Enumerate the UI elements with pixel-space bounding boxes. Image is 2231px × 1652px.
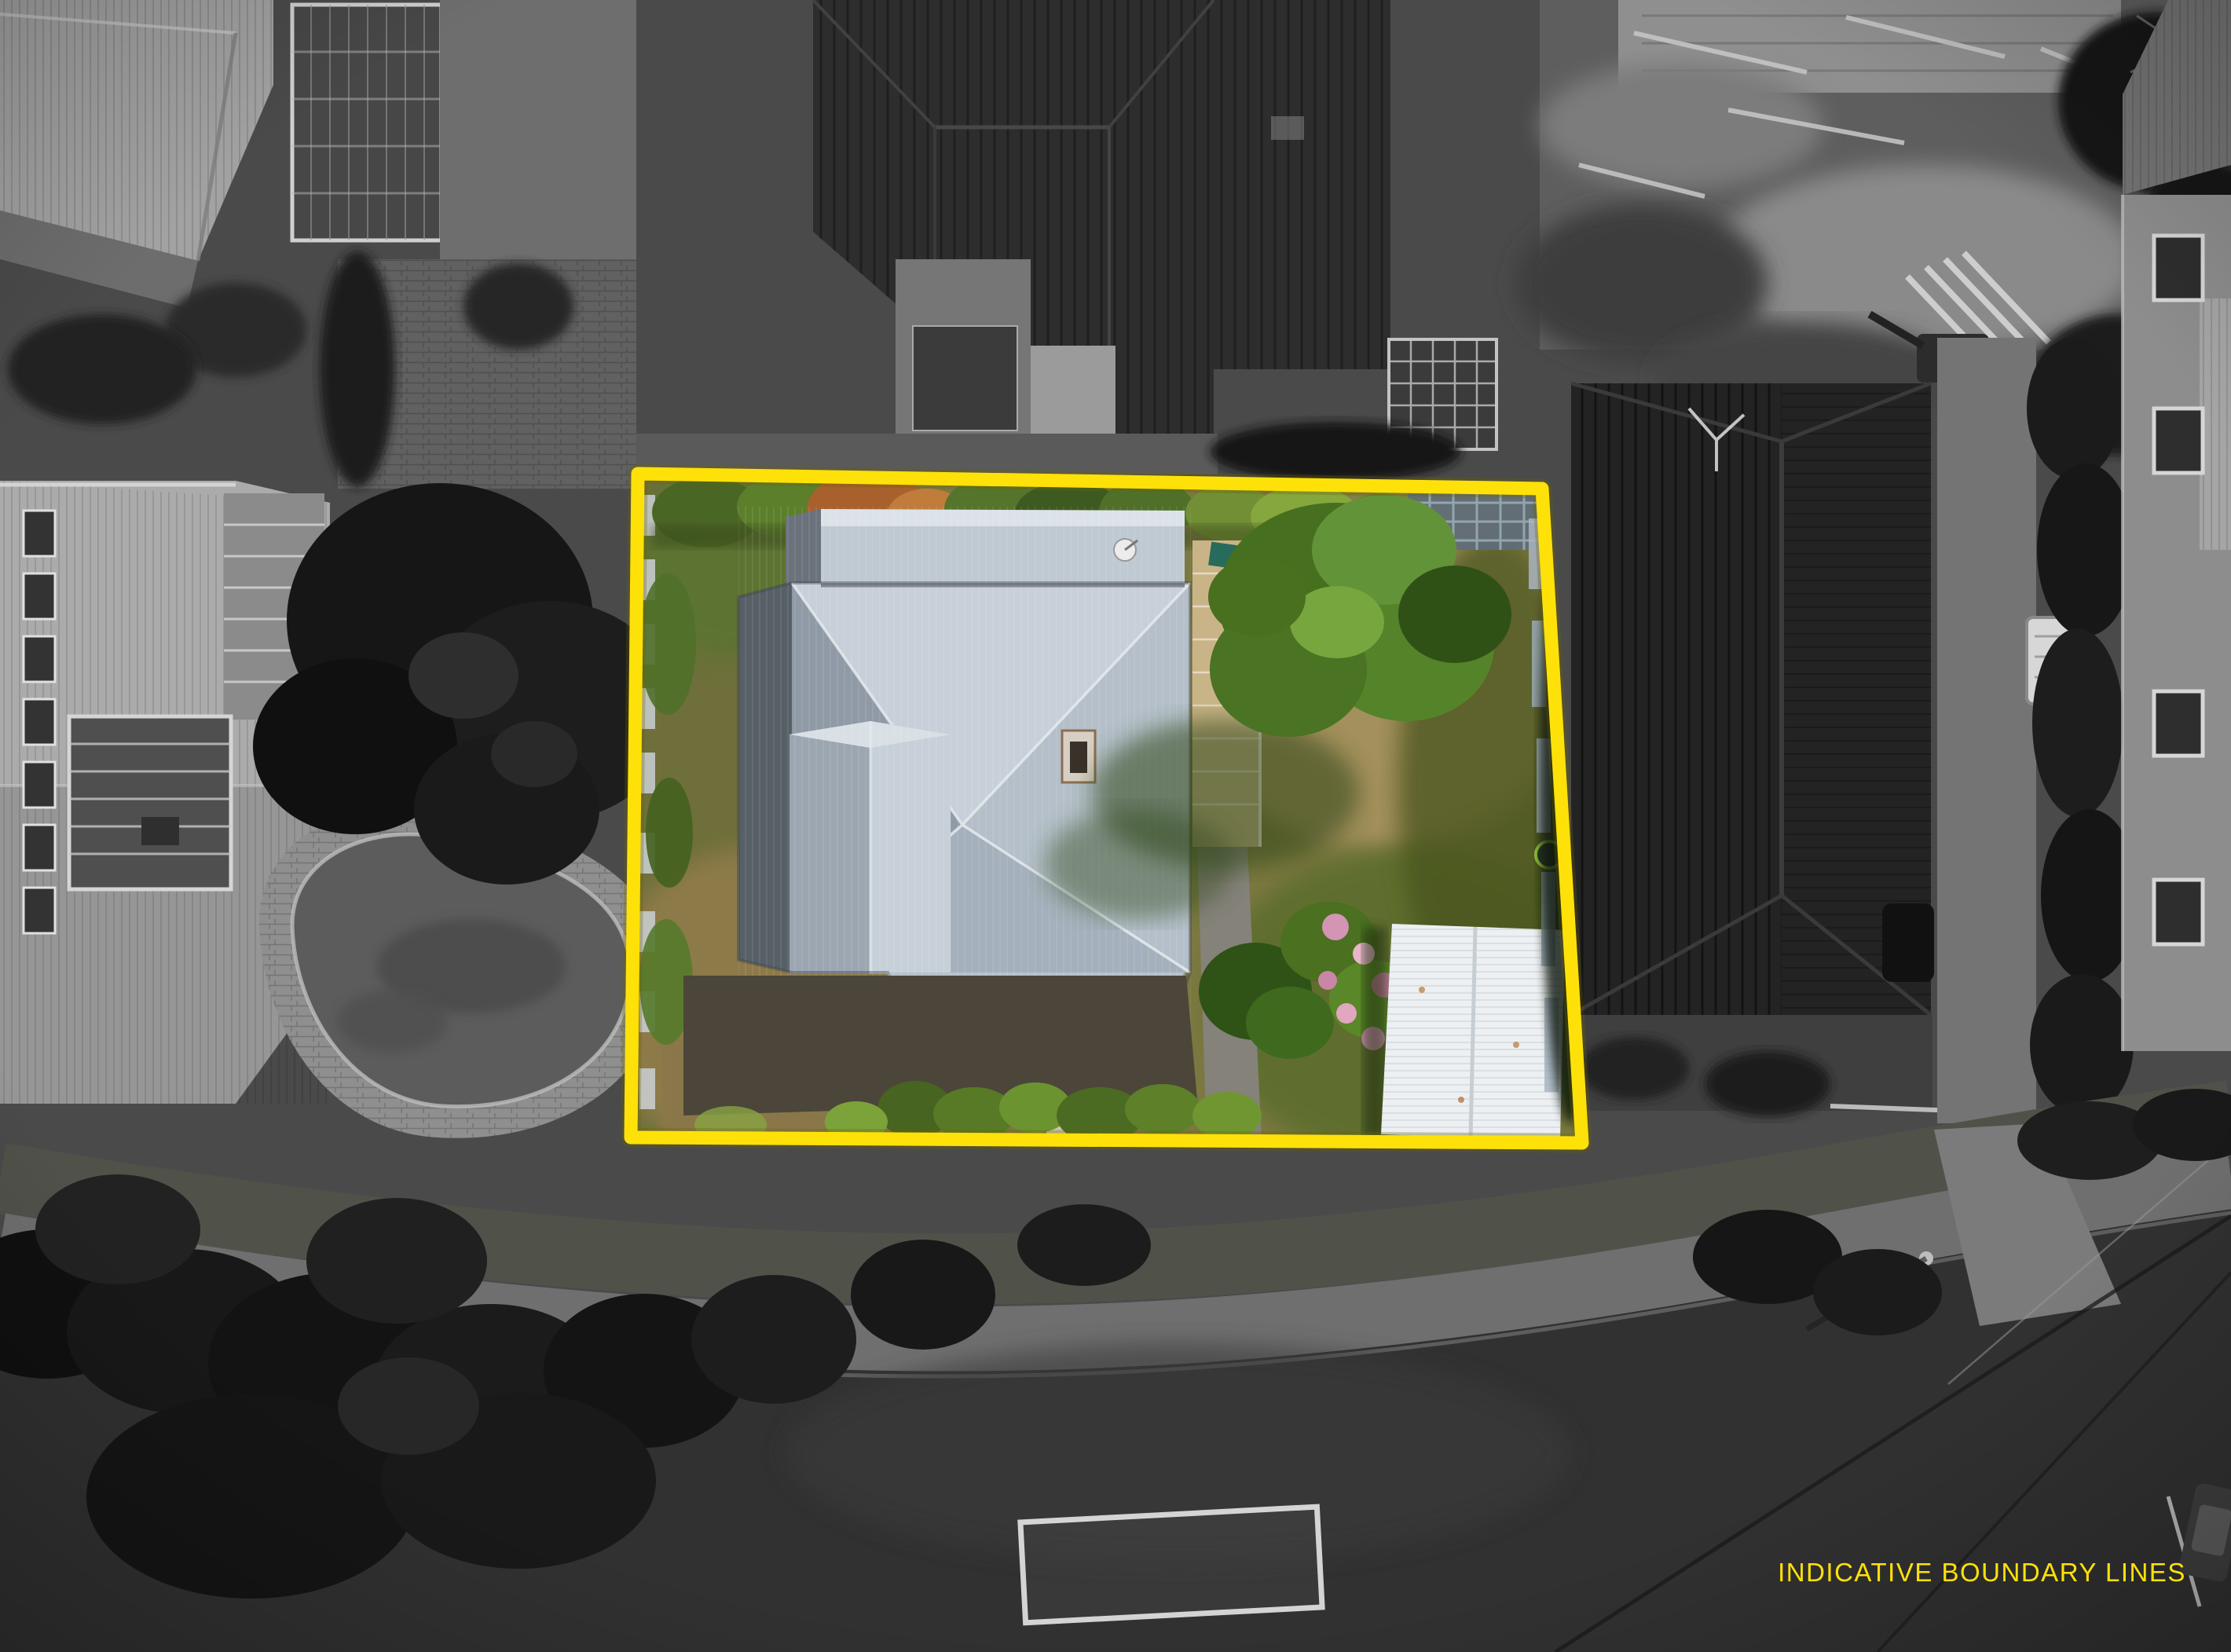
vignette <box>0 0 2231 1652</box>
aerial-photo: INDICATIVE BOUNDARY LINES <box>0 0 2231 1652</box>
boundary-caption: INDICATIVE BOUNDARY LINES <box>1778 1558 2186 1587</box>
aerial-photo-canvas: INDICATIVE BOUNDARY LINES <box>0 0 2231 1652</box>
